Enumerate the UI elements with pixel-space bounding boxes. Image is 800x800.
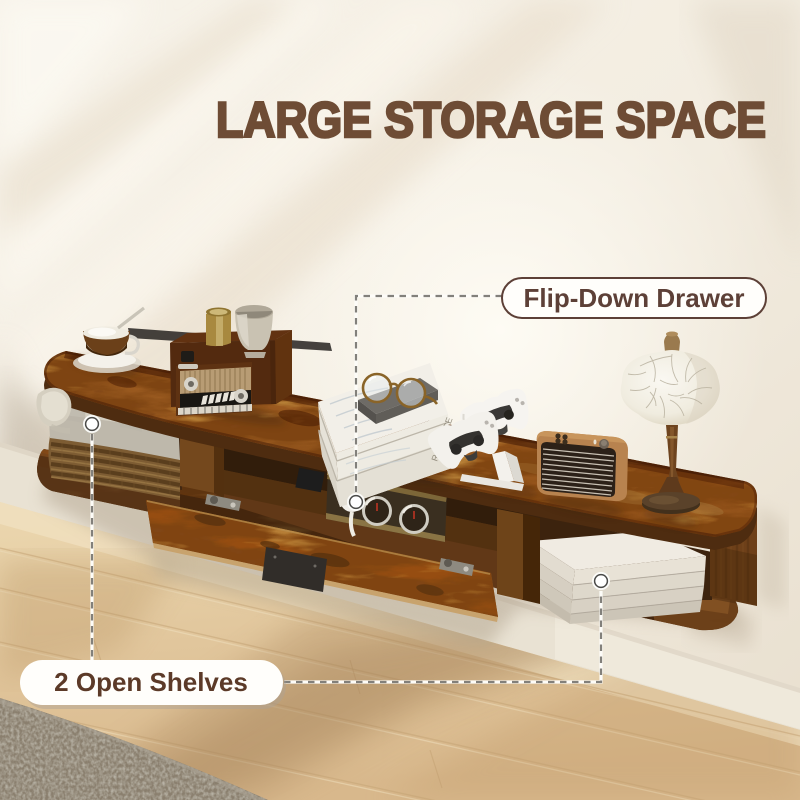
- svg-text:LARGE STORAGE SPACE: LARGE STORAGE SPACE: [216, 92, 766, 148]
- svg-text:Flip-Down Drawer: Flip-Down Drawer: [523, 283, 744, 313]
- svg-text:2 Open Shelves: 2 Open Shelves: [54, 667, 248, 697]
